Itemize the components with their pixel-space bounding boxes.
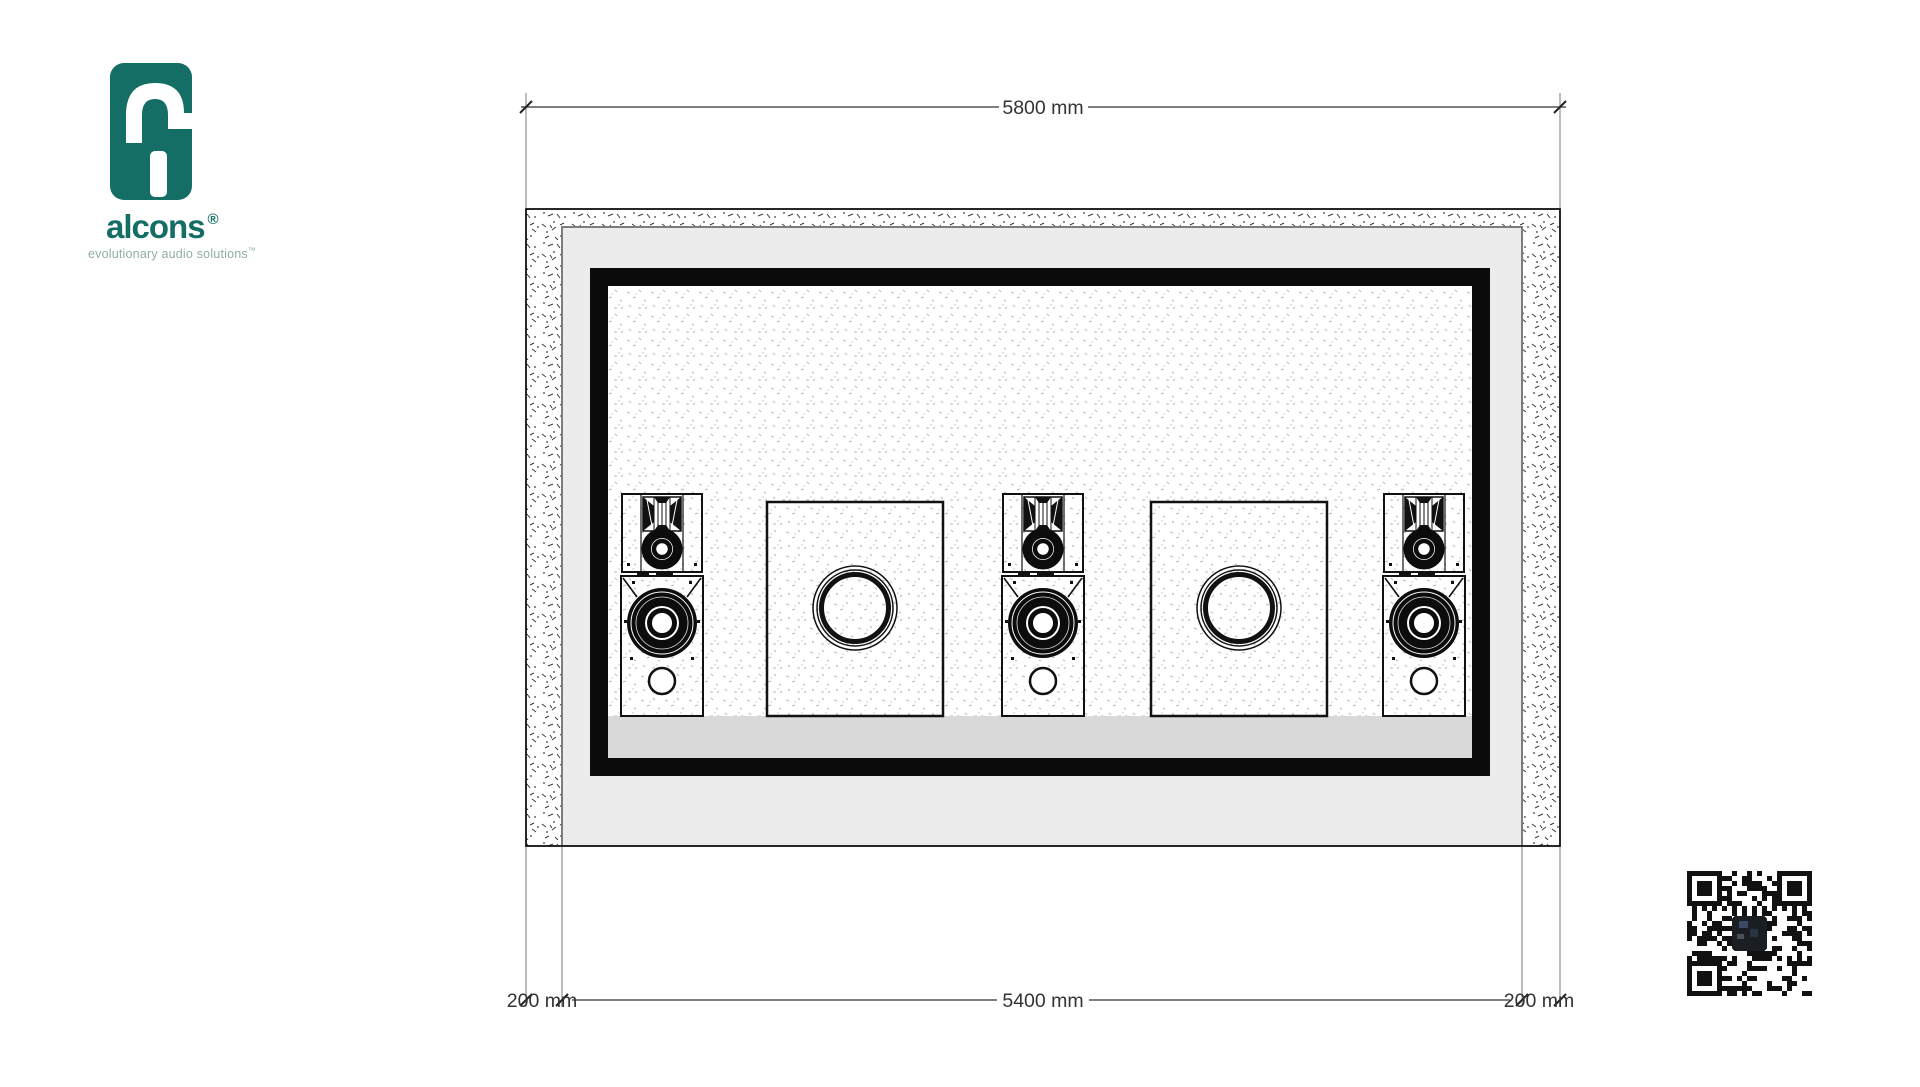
dimension-bottom-right-label: 200 mm (1504, 990, 1574, 1012)
subwoofer-right (1151, 502, 1327, 716)
qr-code (1687, 871, 1812, 996)
dimension-bottom-center-label: 5400 mm (1002, 990, 1083, 1012)
dimension-bottom-left-label: 200 mm (507, 990, 577, 1012)
speaker-stack-right (1383, 494, 1465, 716)
speaker-stack-center (1002, 494, 1084, 716)
baffle-wall-drawing: 5800 mm 200 mm 5400 mm 200 mm (0, 0, 1920, 1087)
floor-strip (608, 716, 1472, 758)
subwoofer-left (767, 502, 943, 716)
dimension-top-label: 5800 mm (1002, 97, 1083, 119)
speaker-stack-left (621, 494, 703, 716)
page: alcons® evolutionary audio solutions™ (0, 0, 1920, 1087)
